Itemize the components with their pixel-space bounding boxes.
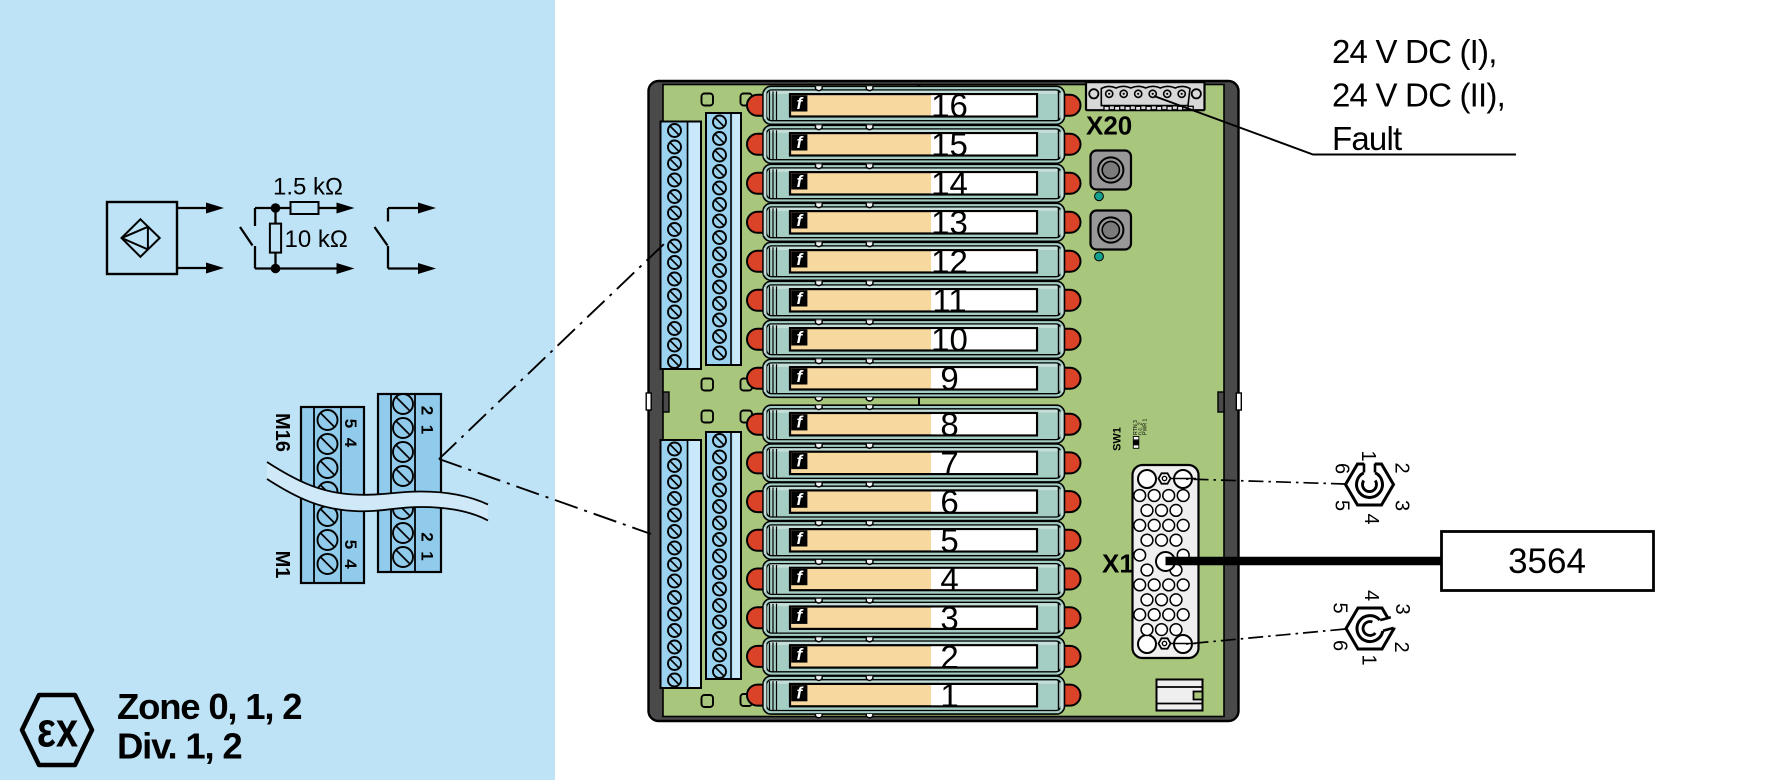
- svg-text:5: 5: [341, 540, 360, 549]
- svg-text:2: 2: [417, 406, 436, 415]
- svg-text:1.5 kΩ: 1.5 kΩ: [273, 174, 343, 201]
- svg-text:5: 5: [1330, 500, 1352, 511]
- svg-text:1: 1: [940, 677, 958, 714]
- svg-text:7: 7: [940, 445, 958, 482]
- svg-text:Zone 0, 1, 2: Zone 0, 1, 2: [117, 686, 301, 727]
- svg-text:9: 9: [940, 360, 958, 397]
- svg-text:Div. 1, 2: Div. 1, 2: [117, 726, 241, 767]
- svg-text:4: 4: [341, 559, 360, 569]
- svg-text:4: 4: [341, 438, 360, 448]
- svg-text:8: 8: [940, 406, 958, 443]
- svg-text:PWR 1: PWR 1: [1143, 418, 1149, 435]
- svg-text:10: 10: [931, 321, 968, 358]
- svg-text:4: 4: [1360, 513, 1382, 524]
- svg-text:SW1: SW1: [1112, 427, 1124, 451]
- svg-text:X20: X20: [1086, 111, 1132, 141]
- svg-text:3564: 3564: [1508, 542, 1586, 581]
- svg-text:Fault: Fault: [1332, 120, 1402, 157]
- svg-text:10 kΩ: 10 kΩ: [285, 226, 348, 253]
- svg-text:2: 2: [1390, 462, 1412, 473]
- svg-text:4: 4: [940, 561, 958, 598]
- svg-text:2: 2: [940, 638, 958, 675]
- svg-text:1: 1: [1357, 450, 1379, 461]
- svg-text:1: 1: [1357, 654, 1379, 665]
- svg-text:24 V DC (II),: 24 V DC (II),: [1332, 77, 1505, 114]
- svg-text:M16: M16: [271, 413, 293, 452]
- svg-text:24 V DC (I),: 24 V DC (I),: [1332, 33, 1497, 70]
- svg-text:11: 11: [932, 282, 966, 319]
- svg-text:5: 5: [940, 522, 958, 559]
- svg-text:3: 3: [1391, 603, 1413, 614]
- svg-text:3: 3: [940, 600, 958, 637]
- svg-text:1: 1: [417, 425, 436, 434]
- svg-text:5: 5: [1328, 602, 1350, 613]
- svg-text:5: 5: [341, 419, 360, 428]
- svg-text:6: 6: [1330, 463, 1352, 474]
- svg-text:13: 13: [931, 204, 968, 241]
- svg-text:12: 12: [931, 243, 968, 280]
- svg-text:3: 3: [1390, 500, 1412, 511]
- svg-text:2: 2: [1390, 641, 1412, 652]
- svg-text:X1: X1: [1102, 549, 1134, 579]
- svg-text:εx: εx: [37, 704, 78, 758]
- svg-text:2: 2: [417, 532, 436, 541]
- svg-text:16: 16: [931, 87, 968, 124]
- svg-text:14: 14: [931, 165, 968, 202]
- svg-text:1: 1: [417, 551, 436, 560]
- svg-text:M1: M1: [271, 551, 293, 579]
- svg-text:15: 15: [931, 126, 968, 163]
- svg-text:4: 4: [1360, 590, 1382, 601]
- svg-text:6: 6: [1328, 640, 1350, 651]
- svg-text:6: 6: [940, 484, 958, 521]
